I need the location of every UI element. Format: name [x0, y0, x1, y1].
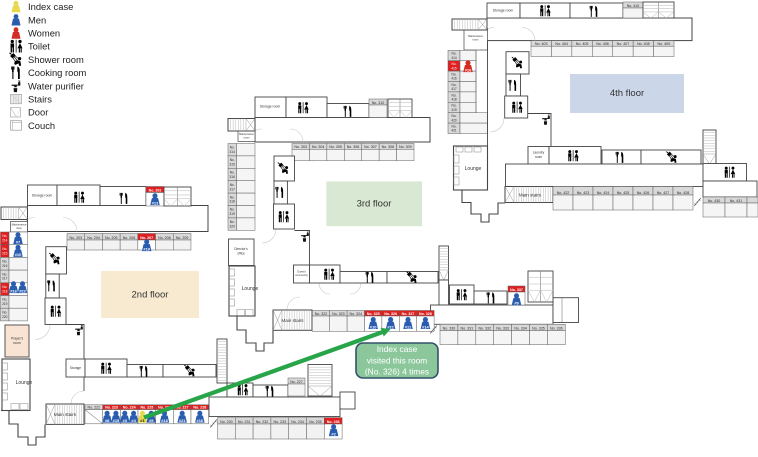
svg-text:No. 334: No. 334 [514, 326, 527, 330]
svg-text:Water purifier: Water purifier [28, 80, 84, 91]
svg-text:Laundry: Laundry [533, 151, 545, 155]
svg-text:#10: #10 [370, 324, 377, 329]
svg-text:417: 417 [451, 87, 457, 91]
svg-text:No. 405: No. 405 [576, 42, 589, 46]
svg-text:No. 304: No. 304 [312, 145, 325, 149]
svg-text:No. 308: No. 308 [382, 145, 395, 149]
svg-text:room: room [16, 226, 22, 230]
svg-text:office: office [237, 252, 245, 256]
svg-text:#19: #19 [143, 246, 150, 251]
svg-text:No. 431: No. 431 [730, 199, 743, 203]
svg-text:418: 418 [451, 98, 457, 102]
svg-text:community: community [295, 273, 308, 277]
svg-text:Maintenance: Maintenance [239, 132, 254, 136]
svg-text:visited this room: visited this room [367, 355, 428, 365]
svg-text:Lounge: Lounge [242, 286, 259, 292]
svg-text:No. 407: No. 407 [617, 42, 630, 46]
svg-text:No. 205: No. 205 [105, 236, 118, 240]
svg-text:(No. 326) 4 times: (No. 326) 4 times [365, 367, 429, 377]
svg-text:215: 215 [2, 251, 8, 255]
svg-text:No.: No. [230, 158, 235, 162]
svg-text:Index case: Index case [377, 344, 418, 354]
svg-text:No. 409: No. 409 [657, 42, 670, 46]
svg-text:No. 303: No. 303 [294, 145, 307, 149]
svg-text:No.: No. [230, 183, 235, 187]
svg-text:No. 206: No. 206 [123, 236, 136, 240]
svg-text:315: 315 [230, 163, 236, 167]
svg-text:217: 217 [2, 277, 8, 281]
svg-text:No. 410: No. 410 [627, 4, 640, 8]
svg-text:421: 421 [451, 129, 457, 133]
svg-text:No.: No. [2, 285, 7, 289]
svg-text:No. 403: No. 403 [535, 42, 548, 46]
svg-text:314: 314 [230, 150, 236, 154]
svg-text:No. 426: No. 426 [637, 191, 650, 195]
svg-text:#13: #13 [152, 200, 159, 205]
svg-text:No. 208: No. 208 [158, 236, 171, 240]
svg-text:415: 415 [451, 66, 457, 70]
svg-text:room: room [473, 38, 479, 42]
svg-text:317: 317 [230, 187, 236, 191]
svg-text:No. 231: No. 231 [238, 420, 251, 424]
svg-text:No. 306: No. 306 [347, 145, 360, 149]
svg-text:#15: #15 [113, 418, 120, 423]
svg-text:#16: #16 [10, 288, 17, 293]
svg-text:No.: No. [230, 208, 235, 212]
svg-text:Index case: Index case [28, 1, 73, 12]
svg-text:Men: Men [28, 14, 46, 25]
svg-text:#18: #18 [161, 418, 168, 423]
svg-text:Shower room: Shower room [28, 54, 84, 65]
svg-text:Maintenance: Maintenance [12, 223, 27, 227]
svg-text:220: 220 [2, 315, 8, 319]
svg-text:Door: Door [28, 107, 48, 118]
svg-text:Cooking room: Cooking room [28, 67, 87, 78]
svg-text:#7: #7 [16, 239, 21, 244]
svg-text:No. 203: No. 203 [70, 236, 83, 240]
svg-text:320: 320 [230, 225, 236, 229]
svg-text:Storage room: Storage room [260, 105, 281, 109]
svg-text:No. 326: No. 326 [384, 312, 397, 316]
svg-text:room: room [13, 341, 21, 345]
svg-text:No.: No. [2, 260, 7, 264]
svg-text:No. 207: No. 207 [140, 236, 153, 240]
svg-text:No. 333: No. 333 [496, 326, 509, 330]
svg-text:No. 235: No. 235 [309, 420, 322, 424]
svg-text:2nd floor: 2nd floor [132, 290, 169, 301]
svg-text:room: room [244, 136, 250, 140]
svg-text:No. 337: No. 337 [510, 288, 523, 292]
svg-text:No. 325: No. 325 [367, 312, 380, 316]
svg-text:No. 224: No. 224 [123, 406, 136, 410]
svg-text:Stairs: Stairs [28, 94, 52, 105]
svg-text:Main stairs: Main stairs [281, 318, 304, 323]
svg-text:Main stairs: Main stairs [519, 193, 542, 198]
svg-text:No. 230: No. 230 [220, 420, 233, 424]
svg-text:No.: No. [2, 247, 7, 251]
svg-text:No. 310: No. 310 [372, 101, 385, 105]
svg-text:No. 324: No. 324 [350, 312, 363, 316]
svg-text:Storage room: Storage room [493, 9, 514, 13]
svg-text:No. 309: No. 309 [399, 145, 412, 149]
svg-text:No. 322: No. 322 [315, 312, 328, 316]
svg-text:No. 209: No. 209 [176, 236, 189, 240]
svg-text:No. 307: No. 307 [364, 145, 377, 149]
svg-text:No. 332: No. 332 [478, 326, 491, 330]
svg-text:#14: #14 [422, 324, 429, 329]
svg-text:No. 330: No. 330 [443, 326, 456, 330]
svg-text:No. 225: No. 225 [140, 406, 153, 410]
svg-text:216: 216 [2, 264, 8, 268]
svg-text:No. 234: No. 234 [291, 420, 304, 424]
svg-text:414: 414 [451, 56, 457, 60]
svg-text:No. 336: No. 336 [550, 326, 563, 330]
svg-text:No.: No. [2, 298, 7, 302]
svg-text:No.: No. [230, 220, 235, 224]
svg-text:No. 323: No. 323 [332, 312, 345, 316]
svg-text:#16: #16 [197, 418, 204, 423]
svg-text:No. 428: No. 428 [677, 191, 690, 195]
svg-text:Storage room: Storage room [32, 194, 53, 198]
svg-text:No. 222: No. 222 [88, 406, 101, 410]
svg-text:420: 420 [451, 118, 457, 122]
svg-text:318: 318 [230, 200, 236, 204]
svg-text:419: 419 [451, 108, 457, 112]
svg-text:No. 227: No. 227 [290, 380, 303, 384]
svg-text:#21: #21 [387, 324, 394, 329]
svg-text:No. 327: No. 327 [402, 312, 415, 316]
svg-text:Lounge: Lounge [465, 166, 482, 172]
svg-text:#10: #10 [15, 252, 22, 257]
svg-text:No.: No. [230, 171, 235, 175]
svg-text:#11: #11 [405, 324, 412, 329]
svg-text:#4: #4 [131, 418, 136, 423]
svg-text:No. 427: No. 427 [657, 191, 670, 195]
svg-text:Storage: Storage [70, 366, 81, 370]
svg-text:Lounge: Lounge [16, 380, 33, 386]
svg-text:No. 228: No. 228 [193, 406, 206, 410]
svg-text:Maintenance: Maintenance [468, 34, 483, 38]
svg-text:No. 404: No. 404 [555, 42, 568, 46]
svg-text:#9: #9 [514, 300, 519, 305]
svg-text:No. 232: No. 232 [256, 420, 269, 424]
svg-text:Main stairs: Main stairs [54, 412, 77, 417]
svg-text:room: room [535, 155, 543, 159]
svg-text:No. 424: No. 424 [597, 191, 610, 195]
svg-text:No.: No. [230, 195, 235, 199]
svg-text:No. 425: No. 425 [617, 191, 630, 195]
svg-text:No. 328: No. 328 [419, 312, 432, 316]
svg-text:219: 219 [2, 302, 8, 306]
svg-text:316: 316 [230, 175, 236, 179]
svg-text:No. 408: No. 408 [637, 42, 650, 46]
svg-text:No. 202: No. 202 [149, 188, 162, 192]
svg-text:Women: Women [28, 28, 60, 39]
svg-text:Couch: Couch [28, 120, 55, 131]
svg-text:No.: No. [2, 310, 7, 314]
svg-text:Toilet: Toilet [28, 41, 50, 52]
svg-text:No.: No. [2, 272, 7, 276]
svg-text:No.: No. [230, 146, 235, 150]
svg-text:#16: #16 [465, 67, 472, 72]
svg-text:Guest's: Guest's [297, 270, 306, 274]
svg-text:#22: #22 [19, 288, 26, 293]
svg-text:No. 423: No. 423 [577, 191, 590, 195]
svg-text:No. 223: No. 223 [105, 406, 118, 410]
svg-text:No. 305: No. 305 [329, 145, 342, 149]
svg-text:#5: #5 [149, 418, 154, 423]
svg-text:No.: No. [2, 234, 7, 238]
svg-text:416: 416 [451, 77, 457, 81]
svg-text:Prayer's: Prayer's [11, 337, 24, 341]
svg-text:No. 204: No. 204 [87, 236, 100, 240]
svg-text:No. 430: No. 430 [708, 199, 721, 203]
svg-text:214: 214 [2, 239, 8, 243]
svg-text:218: 218 [2, 289, 8, 293]
svg-text:No. 236: No. 236 [327, 420, 340, 424]
svg-text:4th floor: 4th floor [610, 88, 644, 99]
svg-text:319: 319 [230, 212, 236, 216]
svg-text:No. 233: No. 233 [274, 420, 287, 424]
svg-text:No. 406: No. 406 [596, 42, 609, 46]
svg-text:No. 331: No. 331 [461, 326, 474, 330]
svg-text:#21: #21 [179, 418, 186, 423]
svg-text:3rd floor: 3rd floor [357, 199, 392, 210]
svg-text:Director's: Director's [234, 247, 248, 251]
svg-text:No. 422: No. 422 [557, 191, 570, 195]
svg-text:No. 335: No. 335 [532, 326, 545, 330]
